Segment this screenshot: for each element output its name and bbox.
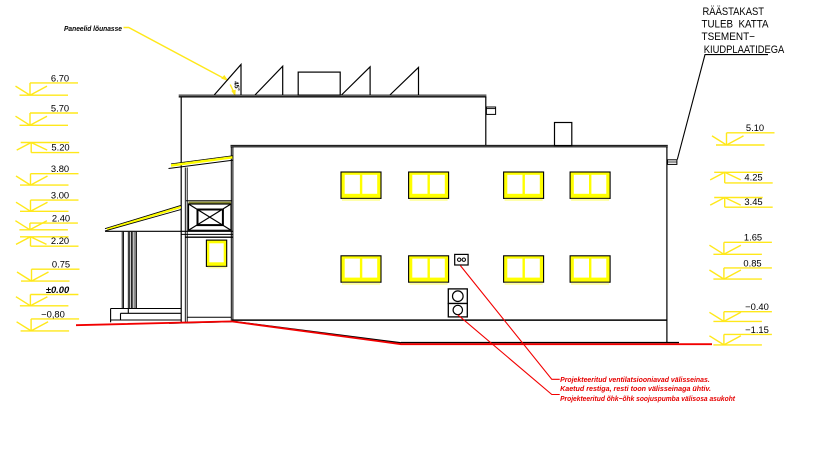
- svg-text:5.70: 5.70: [51, 102, 69, 113]
- svg-text:3.00: 3.00: [51, 190, 69, 201]
- svg-text:−0.40: −0.40: [745, 301, 769, 312]
- svg-text:4.25: 4.25: [744, 172, 762, 183]
- svg-text:Kaetud restiga, resti toon väl: Kaetud restiga, resti toon välisseinaga …: [560, 384, 711, 393]
- svg-text:TSEMENT−: TSEMENT−: [702, 31, 756, 43]
- svg-text:0.75: 0.75: [52, 259, 70, 270]
- svg-text:1.65: 1.65: [744, 232, 762, 243]
- svg-text:Projekteeritud ventilatsioonia: Projekteeritud ventilatsiooniavad väliss…: [560, 375, 710, 384]
- svg-text:3.80: 3.80: [51, 163, 69, 174]
- svg-text:RÄÄSTAKAST: RÄÄSTAKAST: [703, 6, 765, 18]
- svg-text:Paneelid lõunasse: Paneelid lõunasse: [64, 24, 122, 33]
- svg-text:−1.15: −1.15: [745, 324, 769, 335]
- svg-text:±0.00: ±0.00: [46, 284, 70, 295]
- svg-text:2.20: 2.20: [51, 235, 69, 246]
- svg-text:−0,80: −0,80: [41, 308, 65, 319]
- svg-text:TULEB KATTA: TULEB KATTA: [702, 19, 770, 31]
- svg-text:0.85: 0.85: [743, 257, 761, 268]
- svg-text:KIUDPLAATIDEGA: KIUDPLAATIDEGA: [704, 44, 785, 56]
- svg-text:2.40: 2.40: [52, 213, 70, 224]
- svg-text:5.20: 5.20: [51, 141, 69, 152]
- svg-text:5.10: 5.10: [746, 122, 764, 133]
- svg-text:3.45: 3.45: [744, 196, 762, 207]
- svg-text:6.70: 6.70: [51, 72, 69, 83]
- svg-text:Projekteeritud õhk−õhk soojusp: Projekteeritud õhk−õhk soojuspumba välis…: [560, 394, 735, 403]
